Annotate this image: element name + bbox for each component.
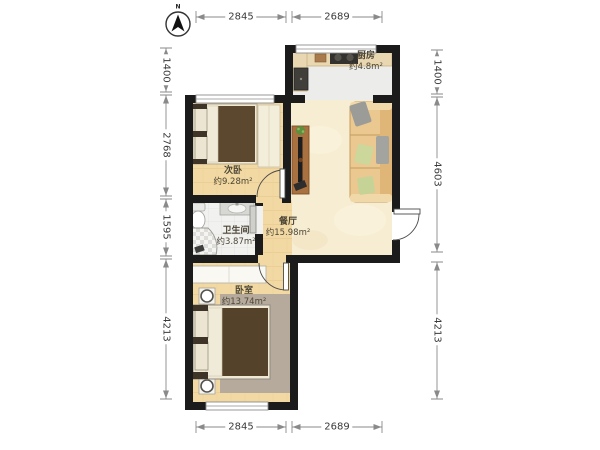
dim-right-1: 1400: [432, 56, 443, 87]
dim-left-3: 1595: [161, 211, 172, 242]
dim-bottom-2: 2689: [321, 422, 352, 433]
pillow: [195, 342, 208, 370]
pillow: [195, 310, 208, 338]
dim-bottom-1: 2845: [225, 422, 256, 433]
stool: [201, 380, 213, 392]
floor-plan-drawing: [0, 0, 600, 450]
cutting-board: [315, 54, 326, 62]
second-bedroom-window: [196, 95, 274, 103]
compass-icon: [166, 12, 190, 36]
pillow: [195, 108, 207, 132]
sofa: [349, 101, 392, 202]
floor-plan: N 厨房 约4.8m² 次卧 约9.28m² 卫生间 约3.87m² 餐厅 约1…: [0, 0, 600, 450]
dim-top-2: 2689: [321, 12, 352, 23]
dim-top-1: 2845: [225, 12, 256, 23]
second-bedroom-bed: [193, 104, 280, 167]
dim-right-2: 4603: [432, 158, 443, 189]
toilet-tank: [191, 203, 205, 211]
dim-right-3: 4213: [432, 314, 443, 345]
stool: [201, 290, 213, 302]
toilet: [191, 211, 205, 229]
dim-left-4: 4213: [161, 313, 172, 344]
pillow: [195, 136, 207, 160]
kitchen-window: [296, 45, 376, 53]
dim-left-2: 2768: [161, 129, 172, 160]
pillow-gray-2: [376, 136, 389, 164]
hall-floor: [258, 200, 292, 260]
tv-cabinet: [292, 126, 309, 194]
compass-north-label: N: [175, 4, 180, 11]
master-bedroom-window: [206, 402, 268, 410]
bathroom-door: [250, 206, 256, 233]
pillow-green-2: [357, 176, 375, 195]
dim-left-1: 1400: [161, 54, 172, 85]
